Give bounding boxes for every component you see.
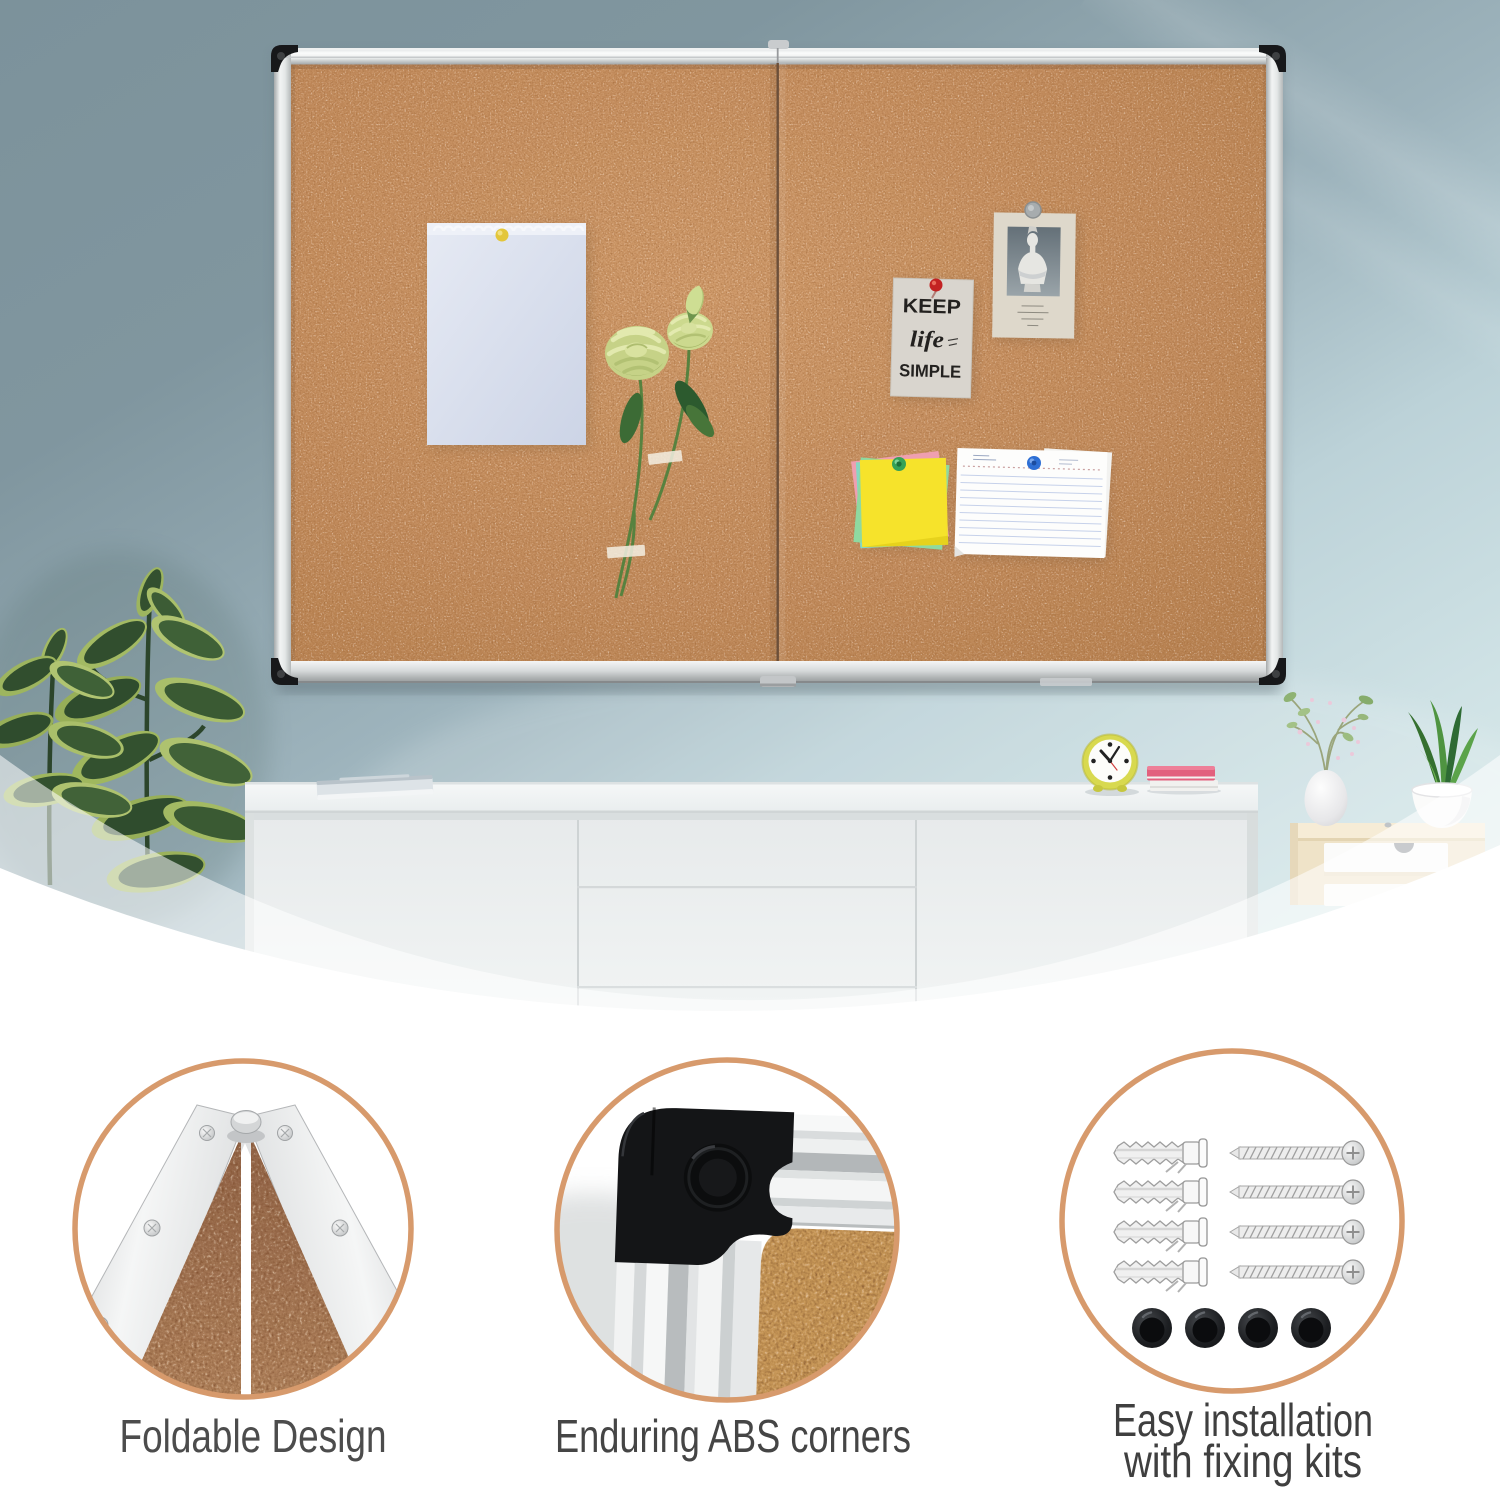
svg-text:with fixing kits: with fixing kits [1123, 1435, 1362, 1487]
svg-text:SIMPLE: SIMPLE [899, 360, 962, 382]
svg-text:Foldable Design: Foldable Design [120, 1410, 387, 1462]
svg-text:Enduring ABS corners: Enduring ABS corners [555, 1410, 911, 1462]
svg-text:life: life [910, 326, 945, 352]
svg-text:KEEP: KEEP [903, 295, 962, 319]
